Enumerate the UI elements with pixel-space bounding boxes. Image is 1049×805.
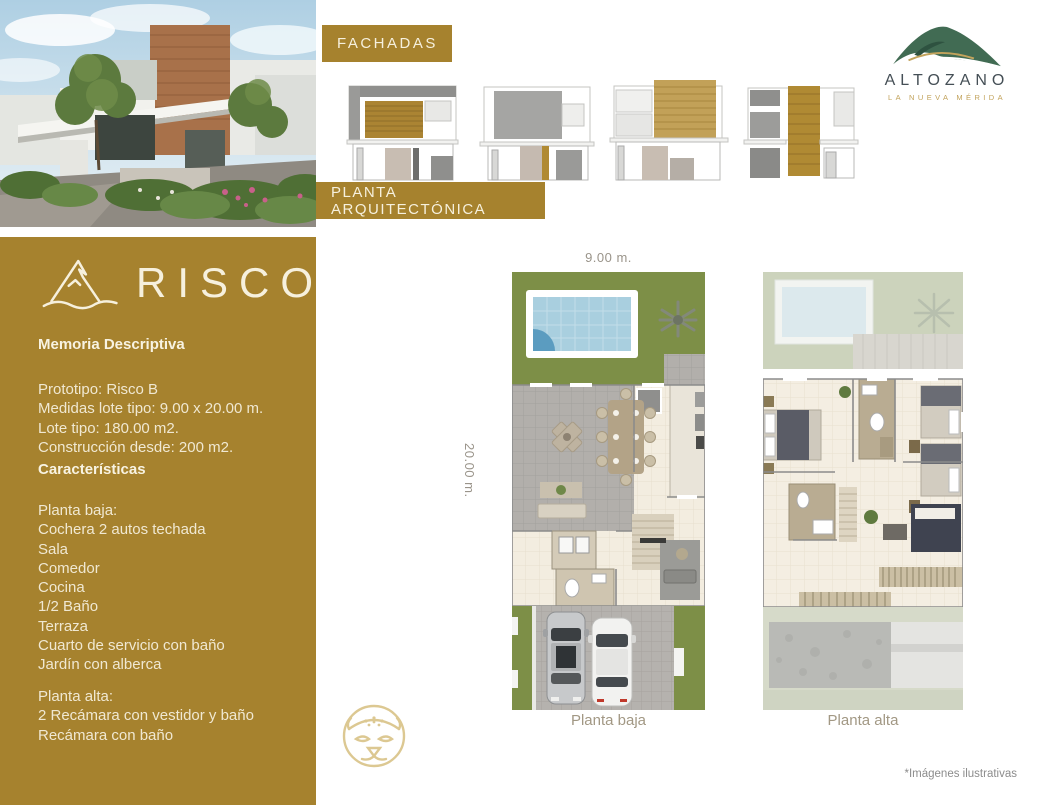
spec-line: Lote tipo: 180.00 m2. [38, 419, 263, 438]
car-silver [543, 612, 589, 704]
planta-arquitectonica-label-text: PLANTA ARQUITECTÓNICA [331, 184, 545, 218]
house-photo [0, 0, 316, 227]
developer-name: ALTOZANO [872, 72, 1022, 90]
risco-mountain-icon [40, 253, 126, 313]
facade-elevation-4 [742, 82, 860, 182]
altozano-mountain-icon [887, 20, 1007, 70]
planta-baja-item: Cochera 2 autos techada [38, 520, 225, 539]
developer-tagline: LA NUEVA MÉRIDA [872, 93, 1022, 102]
memoria-title: Memoria Descriptiva [38, 336, 185, 353]
planta-baja-list: Planta baja: Cochera 2 autos techada Sal… [38, 501, 225, 675]
planta-arquitectonica-label: PLANTA ARQUITECTÓNICA [316, 182, 545, 219]
facade-elevation-2 [478, 84, 596, 182]
planta-baja-item: Sala [38, 540, 225, 559]
spec-list: Prototipo: Risco B Medidas lote tipo: 9.… [38, 380, 263, 457]
footnote: *Imágenes ilustrativas [905, 768, 1018, 780]
spec-line: Medidas lote tipo: 9.00 x 20.00 m. [38, 399, 263, 418]
info-panel: RISCO Memoria Descriptiva Prototipo: Ris… [0, 237, 316, 805]
planta-baja-item: Comedor [38, 559, 225, 578]
jaguar-icon [336, 698, 412, 774]
planta-baja-item: Terraza [38, 617, 225, 636]
planta-baja-title: Planta baja: [38, 501, 225, 520]
planta-baja-item: Jardín con alberca [38, 655, 225, 674]
planta-alta-list: Planta alta: 2 Recámara con vestidor y b… [38, 687, 254, 745]
width-dimension-label: 9.00 m. [512, 250, 705, 265]
project-name: RISCO [136, 259, 324, 307]
caracteristicas-title: Características [38, 461, 146, 478]
facade-elevation-1 [345, 82, 460, 182]
planta-baja-item: 1/2 Baño [38, 597, 225, 616]
facade-elevation-3 [608, 78, 730, 182]
altozano-logo: ALTOZANO LA NUEVA MÉRIDA [872, 20, 1022, 104]
planta-alta-item: Recámara con baño [38, 726, 254, 745]
depth-dimension-label: 20.00 m. [462, 443, 477, 498]
planta-baja-plan [512, 272, 705, 710]
planta-alta-title: Planta alta: [38, 687, 254, 706]
planta-alta-plan [763, 272, 963, 710]
planta-baja-item: Cocina [38, 578, 225, 597]
brochure-page: FACHADAS [0, 0, 1049, 805]
spec-line: Construcción desde: 200 m2. [38, 438, 263, 457]
fachadas-label-text: FACHADAS [337, 35, 438, 52]
planta-alta-item: 2 Recámara con vestidor y baño [38, 706, 254, 725]
spec-line: Prototipo: Risco B [38, 380, 263, 399]
planta-baja-item: Cuarto de servicio con baño [38, 636, 225, 655]
car-white [588, 618, 636, 706]
planta-baja-caption: Planta baja [512, 712, 705, 729]
fachadas-label: FACHADAS [322, 25, 452, 62]
risco-logo: RISCO [40, 253, 324, 313]
planta-alta-caption: Planta alta [763, 712, 963, 729]
